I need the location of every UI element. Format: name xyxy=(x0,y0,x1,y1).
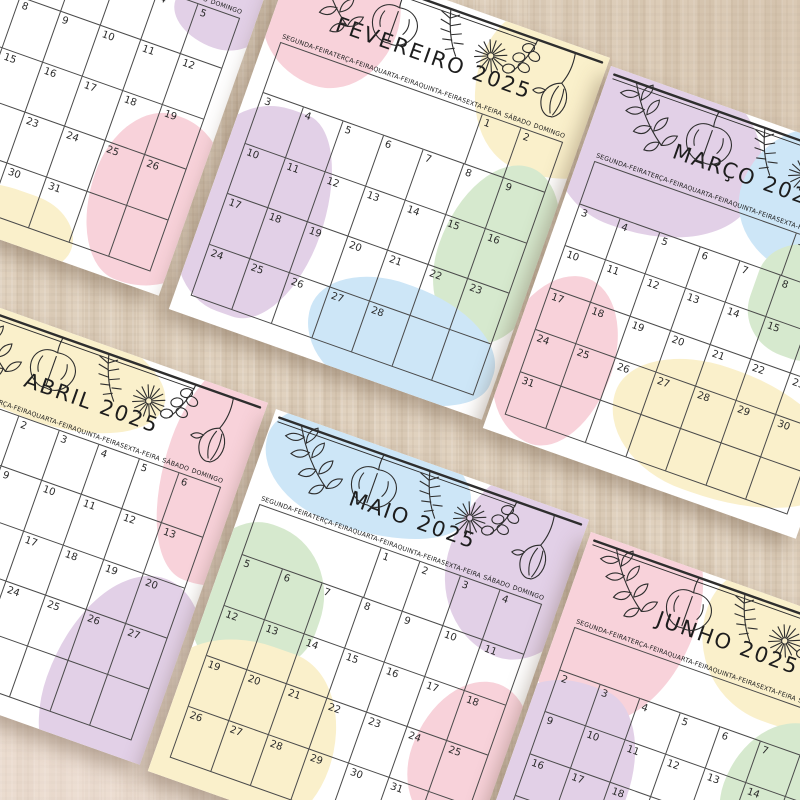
fabric-background: SEGUNDA-FEIRATERÇA-FEIRAQUARTA-FEIRAQUIN… xyxy=(0,0,800,800)
